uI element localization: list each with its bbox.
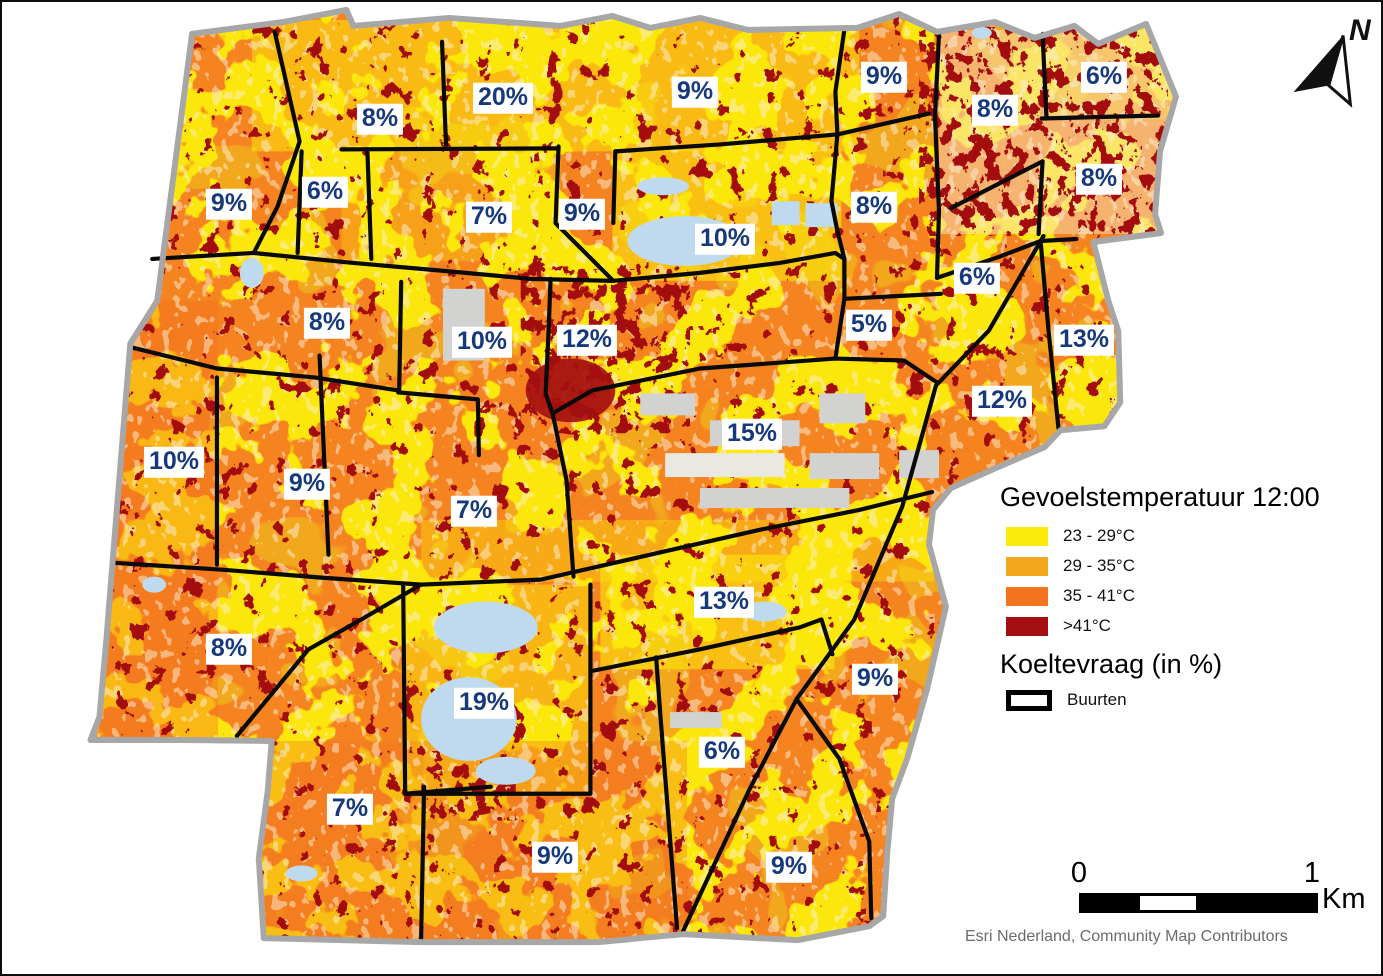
north-letter: N (1349, 14, 1372, 47)
legend-class-label: >41°C (1063, 616, 1111, 636)
scale-unit-label: Km (1322, 883, 1366, 916)
legend-class-row: 23 - 29°C (1000, 521, 1370, 551)
legend-class-list: 23 - 29°C 29 - 35°C 35 - 41°C >41°C (1000, 521, 1370, 641)
legend-title-temperature: Gevoelstemperatuur 12:00 (1000, 482, 1370, 513)
legend-class-row: >41°C (1000, 611, 1370, 641)
scale-bar: 0 1 Km (1042, 857, 1372, 927)
legend-color-swatch (1006, 527, 1048, 546)
legend-class-row: 29 - 35°C (1000, 551, 1370, 581)
legend-class-row: 35 - 41°C (1000, 581, 1370, 611)
legend-class-label: 35 - 41°C (1063, 586, 1135, 606)
scale-bar-graphic (1079, 893, 1318, 913)
buurten-outline-swatch (1006, 690, 1052, 711)
scale-end-label: 1 (1304, 857, 1320, 890)
legend-class-label: 23 - 29°C (1063, 526, 1135, 546)
map-document: 8% 20% 9% 9% 6% 8% 8% 6% 9% 7% 9% 10% 8%… (0, 0, 1383, 976)
buurten-label: Buurten (1067, 690, 1127, 710)
legend-buurten-row: Buurten (1000, 684, 1370, 716)
legend-class-label: 29 - 35°C (1063, 556, 1135, 576)
north-arrow-icon: N (1287, 12, 1382, 122)
legend-color-swatch (1006, 587, 1048, 606)
legend-title-cooling: Koeltevraag (in %) (1000, 649, 1370, 680)
scale-start-label: 0 (1071, 857, 1087, 890)
legend-color-swatch (1006, 617, 1048, 636)
legend: Gevoelstemperatuur 12:00 23 - 29°C 29 - … (1000, 482, 1370, 716)
map-attribution: Esri Nederland, Community Map Contributo… (965, 928, 1288, 946)
legend-color-swatch (1006, 557, 1048, 576)
